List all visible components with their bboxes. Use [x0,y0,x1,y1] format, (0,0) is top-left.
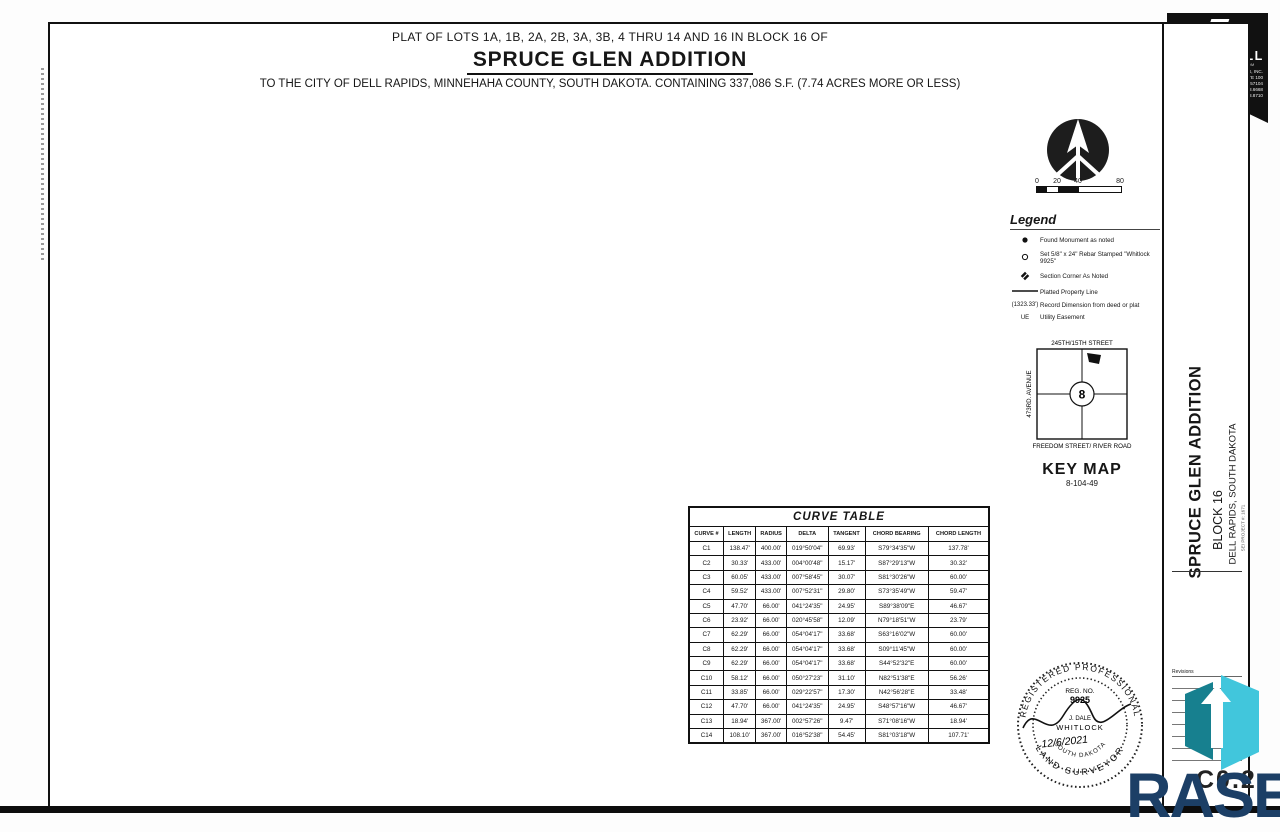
legend-symbol-line [1010,288,1040,296]
curve-table-row: C14108.10'367.00'016°52'38"54.45'S81°03'… [689,728,989,743]
curve-table-cell: 054°04'17" [786,657,828,671]
curve-table-cell: 004°00'48" [786,556,828,570]
curve-table-cell: 12.09' [828,613,865,627]
legend-item-label: Record Dimension from deed or plat [1040,302,1139,309]
rase-watermark: RASE [1126,760,1280,832]
curve-table-cell: 23.92' [723,613,755,627]
curve-table-row: C762.29'66.00'054°04'17"33.68'S63°16'02"… [689,628,989,642]
curve-table-cell: 108.10' [723,728,755,743]
curve-table-cell: S09°11'45"W [865,642,928,656]
curve-table-cell: S81°03'18"W [865,728,928,743]
curve-table-cell: 33.68' [828,642,865,656]
curve-table-cell: 137.78' [928,542,989,556]
curve-table-cell: 46.67' [928,599,989,613]
curve-table-cell: S87°29'13"W [865,556,928,570]
curve-table-cell: 433.00' [756,585,786,599]
curve-table-cell: 9.47' [828,714,865,728]
scale-tick: 80 [1116,178,1124,185]
curve-table-title: CURVE TABLE [689,507,989,527]
curve-table-cell: 24.95' [828,700,865,714]
curve-table-cell: 002°57'26" [786,714,828,728]
curve-table-cell: 18.94' [928,714,989,728]
seal-date: 12/6/2021 [1041,734,1089,751]
curve-table-row: C1138.47'400.00'019°50'04"69.93'S79°34'3… [689,542,989,556]
curve-table-cell: C2 [689,556,723,570]
curve-table-cell: 62.29' [723,628,755,642]
curve-table-cell: 59.47' [928,585,989,599]
curve-table-cell: 33.68' [828,628,865,642]
scale-bar: 0 20 40 80 [1036,178,1122,193]
curve-table-cell: 66.00' [756,599,786,613]
curve-table-cell: C12 [689,700,723,714]
curve-table-cell: C5 [689,599,723,613]
scale-tick: 40 [1074,178,1082,185]
curve-table-header: CHORD BEARING [865,527,928,542]
curve-table-cell: 400.00' [756,542,786,556]
curve-table-cell: 041°24'35" [786,700,828,714]
curve-table-cell: 107.71' [928,728,989,743]
curve-table-cell: 18.94' [723,714,755,728]
legend-item-label: Found Monument as noted [1040,237,1114,244]
curve-table-cell: 367.00' [756,728,786,743]
key-map-grid: 245TH/15TH STREET 8 473RD. AVENUE FREEDO… [1023,336,1141,454]
curve-table-cell: C1 [689,542,723,556]
curve-table-row: C1133.85'66.00'029°22'57"17.30'N42°56'28… [689,685,989,699]
curve-table-cell: S89°38'09"E [865,599,928,613]
key-map: 245TH/15TH STREET 8 473RD. AVENUE FREEDO… [1023,336,1141,488]
north-arrow-icon [1044,116,1112,184]
curve-table-cell: 62.29' [723,642,755,656]
curve-table-cell: 30.07' [828,570,865,584]
scale-tick: 0 [1035,178,1039,185]
keymap-section-number: 8 [1079,388,1086,402]
curve-table-cell: C9 [689,657,723,671]
curve-table-cell: 59.52' [723,585,755,599]
curve-table-cell: C11 [689,685,723,699]
curve-table-cell: S63°16'02"W [865,628,928,642]
curve-table-cell: 54.45' [828,728,865,743]
curve-table-cell: C10 [689,671,723,685]
curve-table-cell: C4 [689,585,723,599]
curve-table-cell: 66.00' [756,657,786,671]
curve-table: CURVE TABLE CURVE #LENGTHRADIUSDELTATANG… [688,506,990,744]
curve-table-row: C360.05'433.00'007°58'45"30.07'S81°30'26… [689,570,989,584]
curve-table-cell: 433.00' [756,570,786,584]
curve-table-cell: C7 [689,628,723,642]
curve-table-cell: 58.12' [723,671,755,685]
legend-symbol-circle [1010,253,1040,263]
curve-table-row: C962.29'66.00'054°04'17"33.68'S44°52'32"… [689,657,989,671]
legend-item-label: Section Corner As Noted [1040,273,1108,280]
curve-table-row: C862.29'66.00'054°04'17"33.68'S09°11'45"… [689,642,989,656]
curve-table-cell: 23.79' [928,613,989,627]
legend-item-label: Platted Property Line [1040,289,1098,296]
curve-table-cell: C14 [689,728,723,743]
curve-table-cell: 33.85' [723,685,755,699]
curve-table-row: C230.33'433.00'004°00'48"15.17'S87°29'13… [689,556,989,570]
curve-table-cell: 60.00' [928,628,989,642]
legend-heading: Legend [1010,212,1160,230]
curve-table-cell: 24.95' [828,599,865,613]
curve-table-header: RADIUS [756,527,786,542]
seal-name-last: WHITLOCK [1056,723,1104,732]
curve-table-cell: S73°35'49"W [865,585,928,599]
legend-symbol-dot [1010,236,1040,246]
title-block: PLAT OF LOTS 1A, 1B, 2A, 2B, 3A, 3B, 4 T… [160,30,1060,90]
curve-table-row: C623.92'66.00'020°45'58"12.09'N79°18'51"… [689,613,989,627]
curve-table-cell: 60.00' [928,657,989,671]
curve-table-header: TANGENT [828,527,865,542]
curve-table-header: DELTA [786,527,828,542]
curve-table-cell: S79°34'35"W [865,542,928,556]
curve-table-cell: 029°22'57" [786,685,828,699]
curve-table-cell: C8 [689,642,723,656]
curve-table-cell: S71°08'16"W [865,714,928,728]
legend-item: UEUtility Easement [1010,314,1160,321]
plot-stamp-microtext [41,68,44,263]
keymap-title: KEY MAP [1023,461,1141,479]
curve-table-cell: 016°52'38" [786,728,828,743]
curve-table-cell: N82°51'38"E [865,671,928,685]
legend-item: Found Monument as noted [1010,236,1160,246]
curve-table-cell: 007°58'45" [786,570,828,584]
curve-table-cell: 56.26' [928,671,989,685]
sheet-bottom-border [0,806,1280,813]
curve-table-row: C459.52'433.00'007°52'31"29.80'S73°35'49… [689,585,989,599]
curve-table-cell: 47.70' [723,599,755,613]
curve-table-row: C547.70'66.00'041°24'35"24.95'S89°38'09"… [689,599,989,613]
seal-reg-label: REG. NO. [1065,688,1094,695]
legend-item: Set 5/8" x 24" Rebar Stamped "Whitlock 9… [1010,251,1160,265]
page-title: SPRUCE GLEN ADDITION [467,46,753,75]
curve-table-cell: 33.68' [828,657,865,671]
legend-item-label: Utility Easement [1040,314,1085,321]
legend-item: Platted Property Line [1010,288,1160,296]
curve-table-cell: 29.80' [828,585,865,599]
title-line1: PLAT OF LOTS 1A, 1B, 2A, 2B, 3A, 3B, 4 T… [160,30,1060,44]
curve-table-cell: 66.00' [756,613,786,627]
curve-table-cell: S81°30'26"W [865,570,928,584]
keymap-subtitle: 8-104-49 [1023,479,1141,488]
curve-table-cell: 30.33' [723,556,755,570]
curve-table-header: CHORD LENGTH [928,527,989,542]
curve-table-cell: 050°27'23" [786,671,828,685]
curve-table-cell: 007°52'31" [786,585,828,599]
sidebar-block: BLOCK 16 [1211,490,1225,550]
curve-table-cell: 138.47' [723,542,755,556]
curve-table-cell: 17.30' [828,685,865,699]
curve-table-header: CURVE # [689,527,723,542]
sidebar-project-number: SEI PROJECT #: 1671 [1241,505,1246,552]
curve-table-cell: 60.00' [928,570,989,584]
curve-table-cell: 47.70' [723,700,755,714]
curve-table-cell: 054°04'17" [786,628,828,642]
curve-table-cell: 60.05' [723,570,755,584]
legend: Legend Found Monument as notedSet 5/8" x… [1010,212,1160,321]
legend-symbol-text: UE [1010,315,1040,321]
curve-table-cell: 60.00' [928,642,989,656]
scale-tick: 20 [1053,178,1061,185]
title-line3: TO THE CITY OF DELL RAPIDS, MINNEHAHA CO… [160,78,1060,90]
curve-table-cell: C6 [689,613,723,627]
curve-table-cell: 15.17' [828,556,865,570]
keymap-street-left: 473RD. AVENUE [1026,370,1033,417]
seal-name-first: J. DALE [1069,716,1091,722]
curve-table-cell: 62.29' [723,657,755,671]
curve-table-cell: 019°50'04" [786,542,828,556]
curve-table-cell: N42°56'28"E [865,685,928,699]
sidebar-city: DELL RAPIDS, SOUTH DAKOTA [1228,424,1239,565]
curve-table-cell: 46.67' [928,700,989,714]
curve-table-cell: 367.00' [756,714,786,728]
sheet-frame [48,22,1164,808]
curve-table-cell: 66.00' [756,628,786,642]
curve-table-row: C1247.70'66.00'041°24'35"24.95'S48°57'16… [689,700,989,714]
keymap-street-bottom: FREEDOM STREET/ RIVER ROAD [1032,443,1132,450]
curve-table-cell: 69.93' [828,542,865,556]
curve-table-cell: 433.00' [756,556,786,570]
curve-table-cell: 66.00' [756,700,786,714]
curve-table-cell: 33.48' [928,685,989,699]
curve-table-cell: 31.10' [828,671,865,685]
curve-table-cell: C3 [689,570,723,584]
legend-item: (1323.33')Record Dimension from deed or … [1010,302,1160,309]
curve-table-cell: N79°18'51"W [865,613,928,627]
curve-table-cell: 041°24'35" [786,599,828,613]
legend-item: Section Corner As Noted [1010,271,1160,283]
curve-table-cell: 66.00' [756,671,786,685]
rase-logo-icon [1175,662,1267,774]
curve-table-cell: 66.00' [756,642,786,656]
curve-table-cell: S48°57'16"W [865,700,928,714]
curve-table-cell: 66.00' [756,685,786,699]
legend-symbol-section [1010,271,1040,283]
curve-table-cell: C13 [689,714,723,728]
curve-table-cell: S44°52'32"E [865,657,928,671]
legend-symbol-text: (1323.33') [1010,302,1040,308]
legend-item-label: Set 5/8" x 24" Rebar Stamped "Whitlock 9… [1040,251,1160,265]
keymap-street-top: 245TH/15TH STREET [1051,340,1113,347]
curve-table-cell: 30.32' [928,556,989,570]
curve-table-cell: 020°45'58" [786,613,828,627]
sidebar-divider [1172,571,1242,572]
curve-table-cell: 054°04'17" [786,642,828,656]
curve-table-header: LENGTH [723,527,755,542]
curve-table-row: C1058.12'66.00'050°27'23"31.10'N82°51'38… [689,671,989,685]
curve-table-row: C1318.94'367.00'002°57'26"9.47'S71°08'16… [689,714,989,728]
sidebar-project-title: SPRUCE GLEN ADDITION [1187,366,1206,579]
